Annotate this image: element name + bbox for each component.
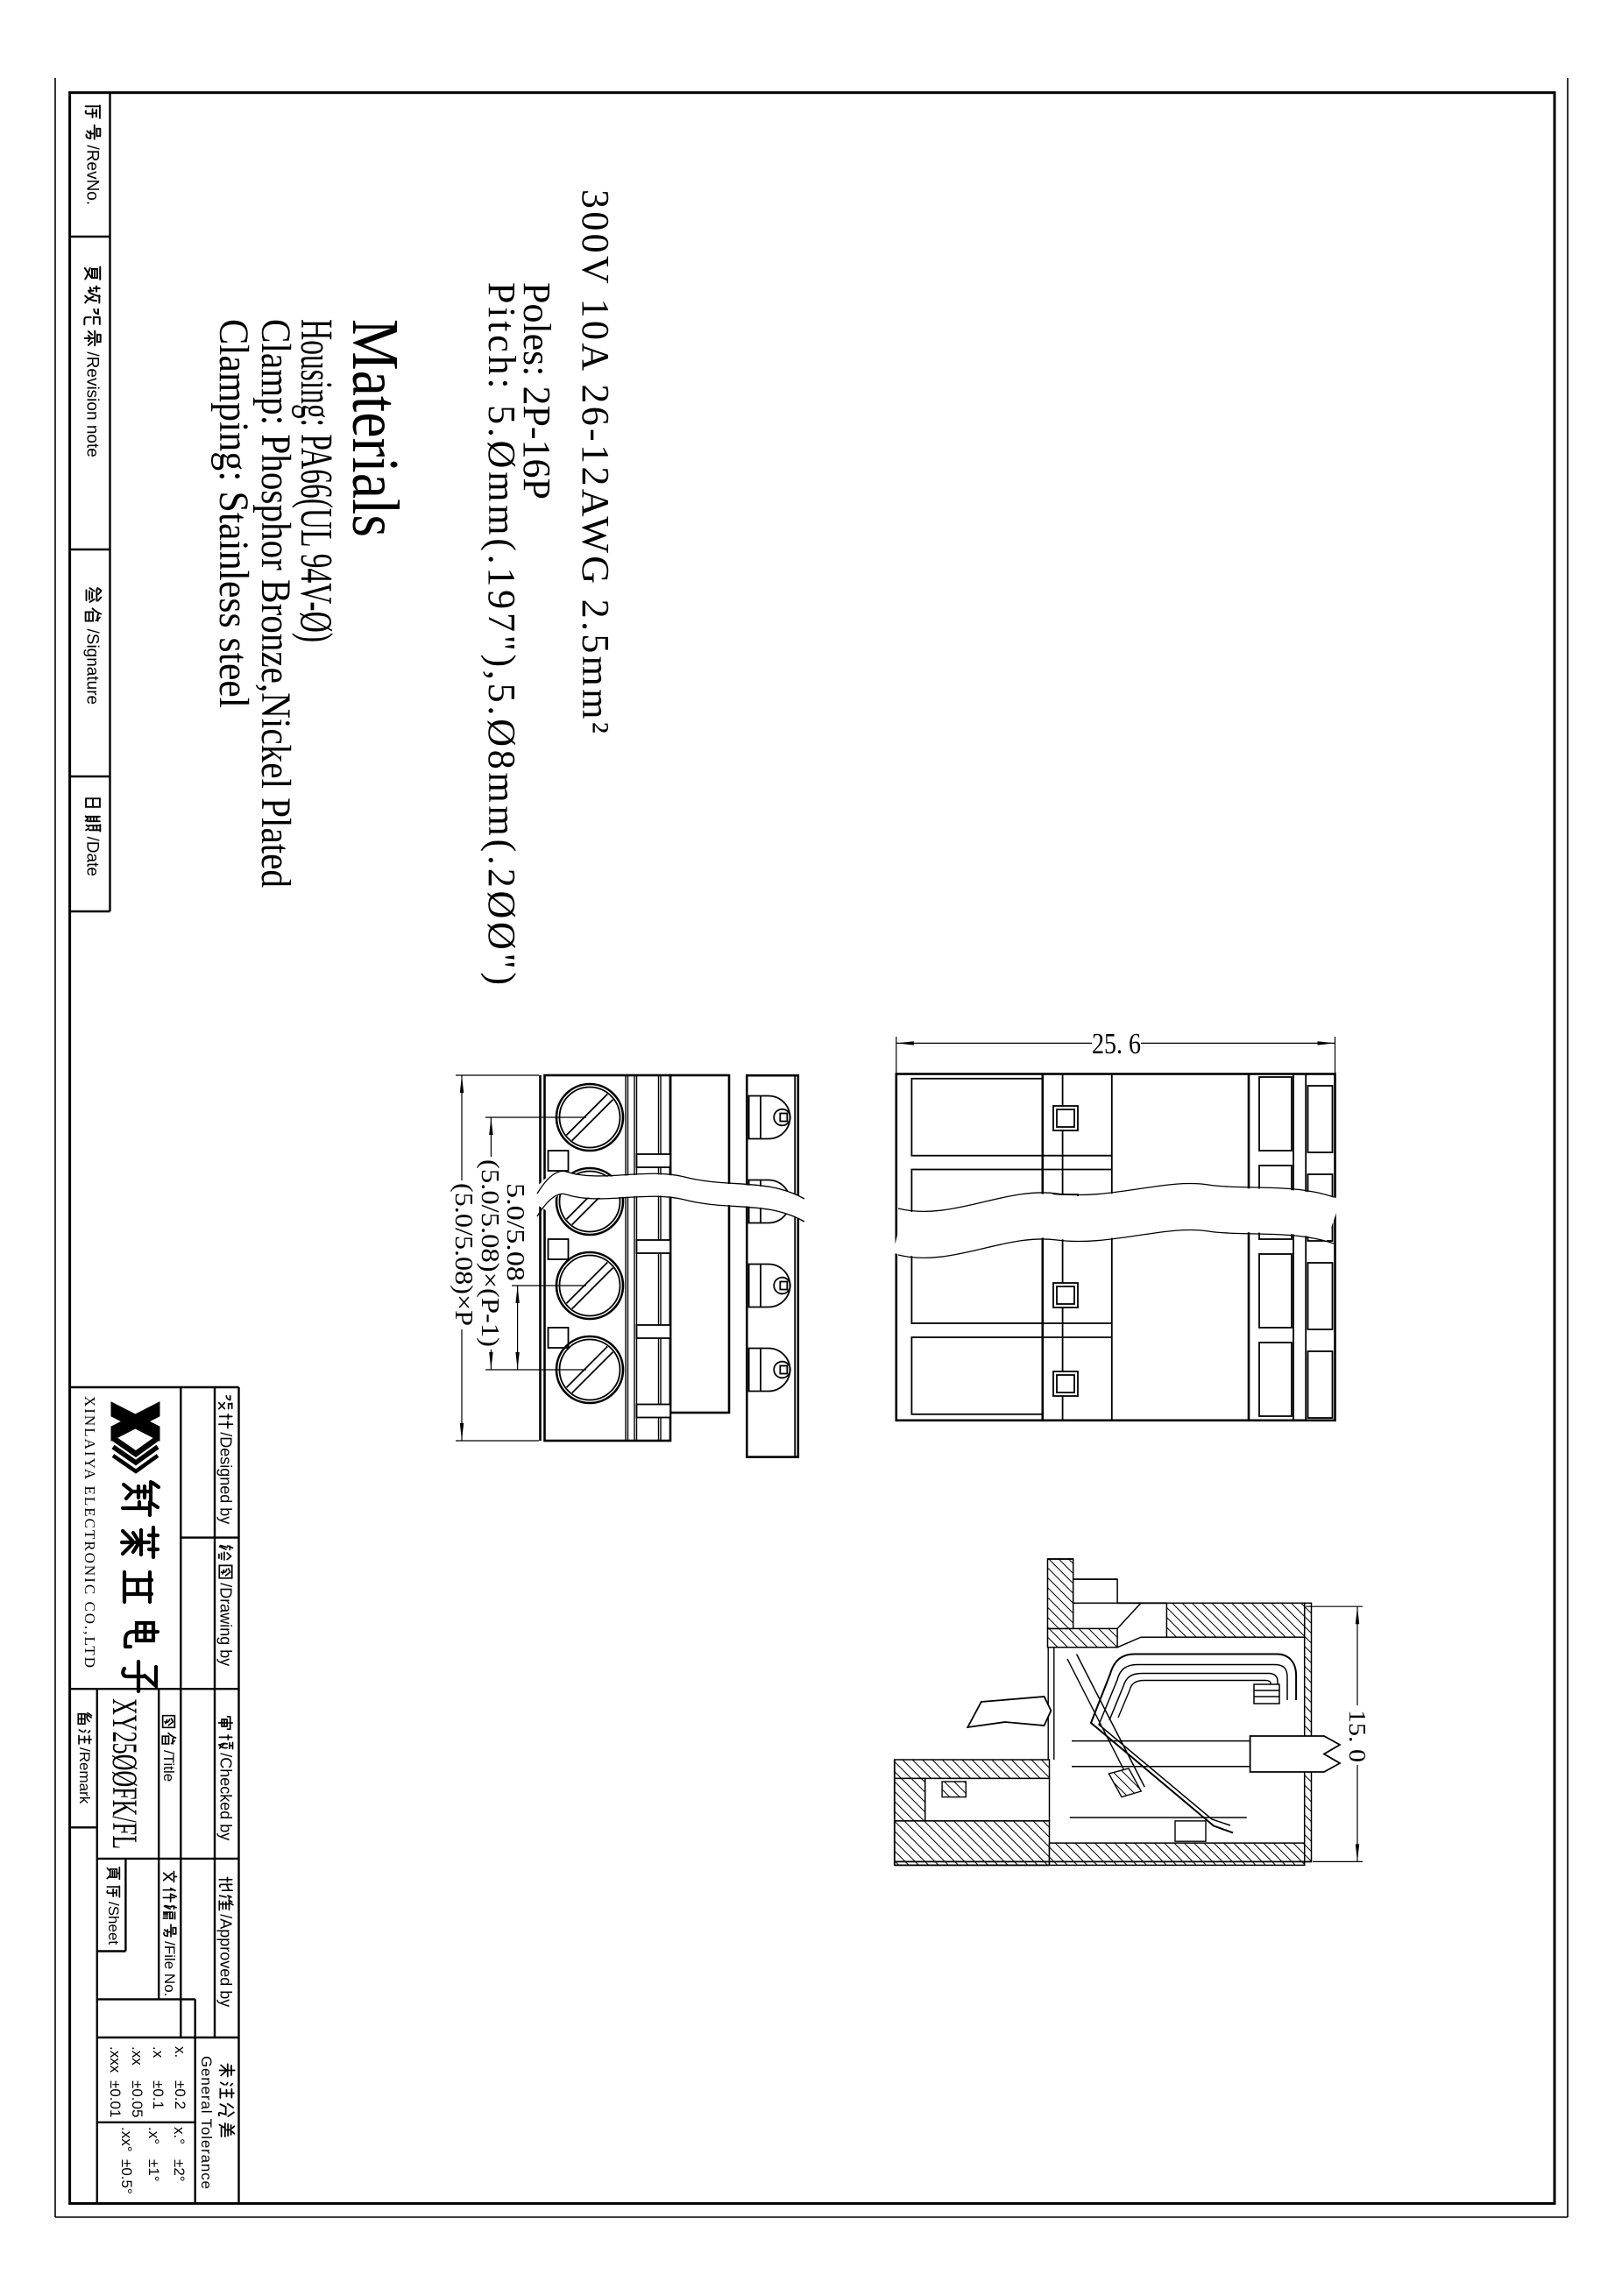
- svg-text:/Checked by: /Checked by: [217, 1753, 235, 1840]
- svg-text:25. 6: 25. 6: [1092, 1028, 1141, 1060]
- svg-text:.x: .x: [150, 2046, 166, 2059]
- svg-text:±0.05: ±0.05: [129, 2080, 145, 2117]
- svg-text:(5.0/5.08)×(P-1): (5.0/5.08)×(P-1): [476, 1159, 503, 1347]
- svg-text:.xx: .xx: [129, 2046, 145, 2066]
- svg-text:/Sheet: /Sheet: [105, 1902, 122, 1945]
- svg-text:±2°: ±2°: [171, 2159, 188, 2182]
- svg-text:/Title: /Title: [160, 1750, 177, 1782]
- svg-text:300V 10A 26-12AWG 2.5mm²: 300V 10A 26-12AWG 2.5mm²: [574, 189, 617, 733]
- svg-text:x.: x.: [172, 2046, 188, 2058]
- svg-text:/Signature: /Signature: [83, 629, 102, 705]
- svg-text:/Approved by: /Approved by: [217, 1914, 235, 2007]
- svg-text:/Date: /Date: [83, 837, 102, 876]
- svg-text:XY25ØØFK/FL: XY25ØØFK/FL: [105, 1698, 145, 1849]
- svg-text:/RevNo.: /RevNo.: [83, 145, 102, 206]
- svg-text:±0.1: ±0.1: [150, 2080, 166, 2109]
- svg-text:/Remark: /Remark: [76, 1747, 93, 1804]
- svg-text:±0.2: ±0.2: [172, 2080, 188, 2109]
- svg-text:Clamping: Stainless steel: Clamping: Stainless steel: [210, 319, 257, 708]
- svg-text:Clamp: Phosphor Bronze,Nickel: Clamp: Phosphor Bronze,Nickel Plated: [252, 319, 299, 888]
- svg-text:.xx°: .xx°: [118, 2127, 135, 2152]
- svg-text:±0.5°: ±0.5°: [118, 2159, 135, 2194]
- svg-text:±0.01: ±0.01: [107, 2080, 124, 2117]
- svg-text:XINLAIYA ELECTRONIC CO.,LTD: XINLAIYA ELECTRONIC CO.,LTD: [81, 1396, 98, 1668]
- svg-text:/Designed by: /Designed by: [217, 1432, 235, 1524]
- svg-text:15. 0: 15. 0: [1344, 1710, 1371, 1762]
- svg-text:±1°: ±1°: [145, 2159, 162, 2182]
- svg-text:/Revision note: /Revision note: [83, 351, 102, 457]
- svg-text:Materials: Materials: [338, 319, 412, 537]
- svg-text:.x°: .x°: [145, 2127, 162, 2144]
- svg-text:.xxx: .xxx: [107, 2046, 124, 2073]
- svg-text:x.°: x.°: [171, 2127, 188, 2144]
- svg-text:/File No.: /File No.: [161, 1941, 178, 1996]
- svg-text:5.0/5.08: 5.0/5.08: [501, 1183, 528, 1281]
- svg-text:General Tolerance: General Tolerance: [198, 2056, 215, 2189]
- svg-text:(5.0/5.08)×P: (5.0/5.08)×P: [450, 1183, 477, 1326]
- svg-text:/Drawing by: /Drawing by: [217, 1583, 235, 1666]
